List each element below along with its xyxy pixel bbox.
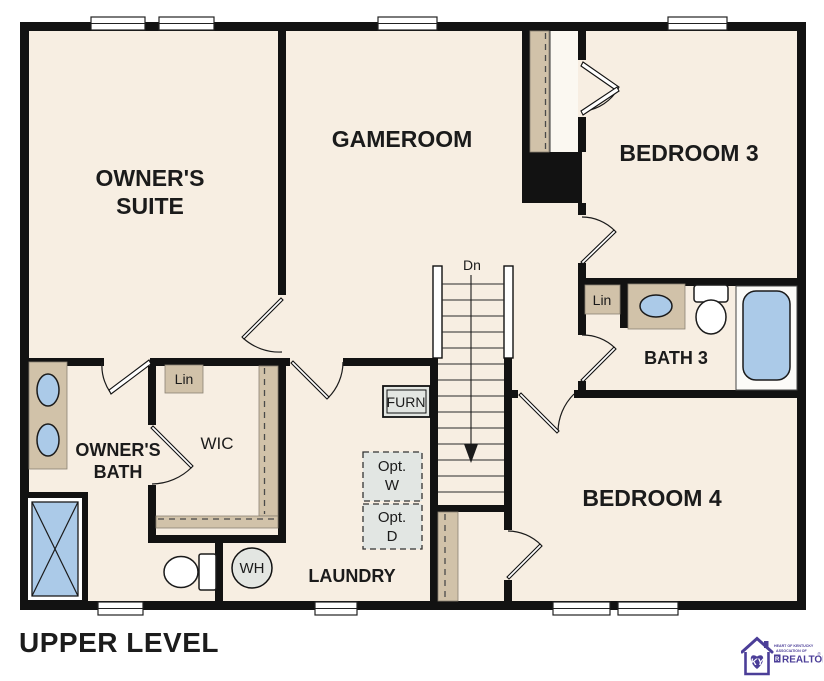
room-label-owners-suite: OWNER'S <box>96 165 205 191</box>
stair-down-label: Dn <box>463 257 481 273</box>
logo-monogram: KY <box>750 657 765 668</box>
floor-plan-drawing: Dn <box>0 0 824 624</box>
plan-title: UPPER LEVEL <box>19 627 219 659</box>
furnace: FURN <box>383 386 430 417</box>
owners-linen-label: Lin <box>175 371 194 387</box>
furnace-label: FURN <box>387 394 426 410</box>
owners-toilet-bowl <box>164 557 198 588</box>
bedroom4-closet-shelf <box>438 512 458 601</box>
room-label-gameroom: GAMEROOM <box>332 126 473 152</box>
bath3-toilet-bowl <box>696 300 726 334</box>
window <box>553 602 610 615</box>
stairs-east-wall <box>504 358 512 530</box>
bath3-sink <box>640 295 672 317</box>
svg-text:W: W <box>385 477 400 494</box>
water-heater-label: WH <box>240 560 265 577</box>
svg-text:Opt.: Opt. <box>378 458 406 475</box>
chimney-chase <box>522 152 582 203</box>
room-label-bath3: BATH 3 <box>644 348 708 368</box>
svg-text:HEART OF KENTUCKY: HEART OF KENTUCKY <box>774 644 814 648</box>
room-label-owners-bath: OWNER'S <box>75 440 160 460</box>
svg-text:ASSOCIATION OF: ASSOCIATION OF <box>776 649 807 653</box>
window <box>668 17 727 30</box>
logo-wordmark: HEART OF KENTUCKY ASSOCIATION OF R REALT… <box>774 644 823 666</box>
owners-bath-sink-1 <box>37 374 59 406</box>
room-label-bedroom3: BEDROOM 3 <box>619 140 758 166</box>
room-label-laundry: LAUNDRY <box>308 566 395 586</box>
svg-text:SUITE: SUITE <box>116 193 184 219</box>
stair-rail-left <box>433 266 442 358</box>
svg-text:D: D <box>387 528 398 545</box>
window <box>378 17 437 30</box>
room-label-wic: WIC <box>200 434 233 453</box>
wic-shelf-south <box>156 516 278 528</box>
window <box>98 602 143 615</box>
bath3-linen-label: Lin <box>593 292 612 308</box>
wic-shelf-east <box>259 366 278 516</box>
bedroom3-closet-floor <box>549 31 578 152</box>
room-label-bedroom4: BEDROOM 4 <box>582 485 722 511</box>
water-heater: WH <box>232 548 272 588</box>
realtor-logo: KY HEART OF KENTUCKY ASSOCIATION OF R RE… <box>741 636 823 680</box>
stair-rail-right <box>504 266 513 358</box>
owners-bath-shower <box>22 492 88 606</box>
bedroom3-closet-shelf <box>530 31 549 152</box>
owners-toilet-tank <box>199 554 216 590</box>
owners-bath-sink-2 <box>37 424 59 456</box>
svg-text:BATH: BATH <box>94 462 143 482</box>
bedroom4-north-wall <box>574 390 797 398</box>
window <box>91 17 145 30</box>
floor-plan-page: Dn <box>0 0 824 681</box>
svg-text:Opt.: Opt. <box>378 509 406 526</box>
wic-east-wall <box>278 366 286 543</box>
optional-dryer: Opt. D <box>363 504 422 549</box>
window <box>159 17 214 30</box>
owners-suite-east-wall <box>278 22 286 295</box>
bath3-bathtub <box>743 291 790 380</box>
window <box>618 602 678 615</box>
logo-realtor-r: R <box>775 657 780 663</box>
logo-house-icon: KY <box>742 639 772 675</box>
optional-washer: Opt. W <box>363 452 422 501</box>
stairs-west-wall <box>430 358 438 601</box>
window <box>315 602 357 615</box>
